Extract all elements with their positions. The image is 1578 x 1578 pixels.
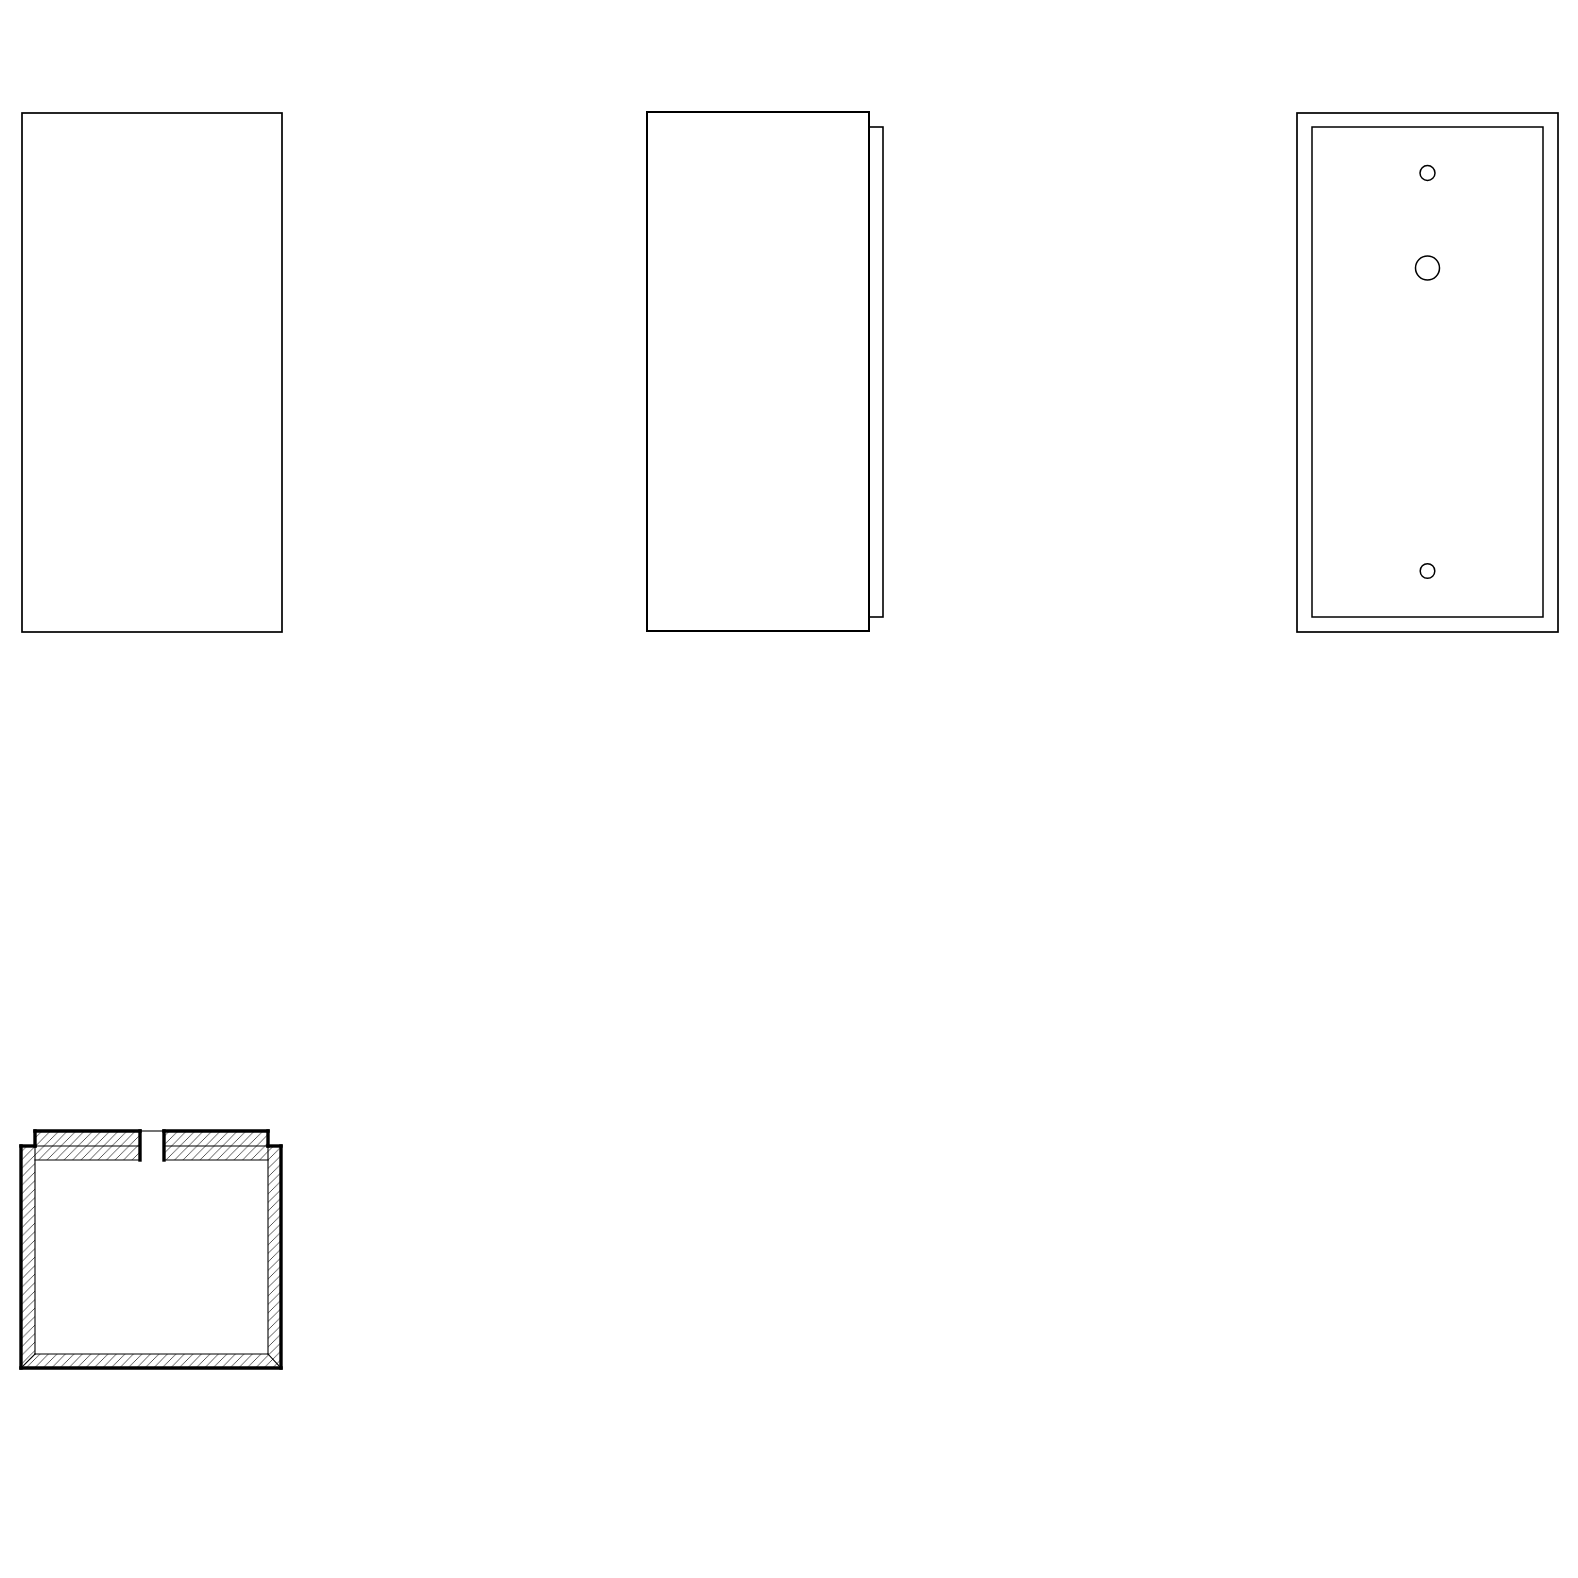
side-panel-outline xyxy=(647,112,869,631)
cable-hole xyxy=(1416,256,1440,280)
screw-hole-bottom xyxy=(1420,564,1435,579)
housing-walls-hatch xyxy=(21,1146,281,1368)
front-panel-outline xyxy=(22,113,282,632)
back-plate-edge xyxy=(869,127,883,617)
section-view xyxy=(21,1131,281,1368)
front-view xyxy=(22,113,282,632)
side-view xyxy=(647,112,883,631)
technical-drawing xyxy=(0,0,1578,1578)
screw-hole-top xyxy=(1420,166,1435,181)
drawing-canvas xyxy=(0,0,1578,1578)
back-plate-inner-edge xyxy=(1312,127,1543,617)
back-view xyxy=(1297,113,1558,632)
